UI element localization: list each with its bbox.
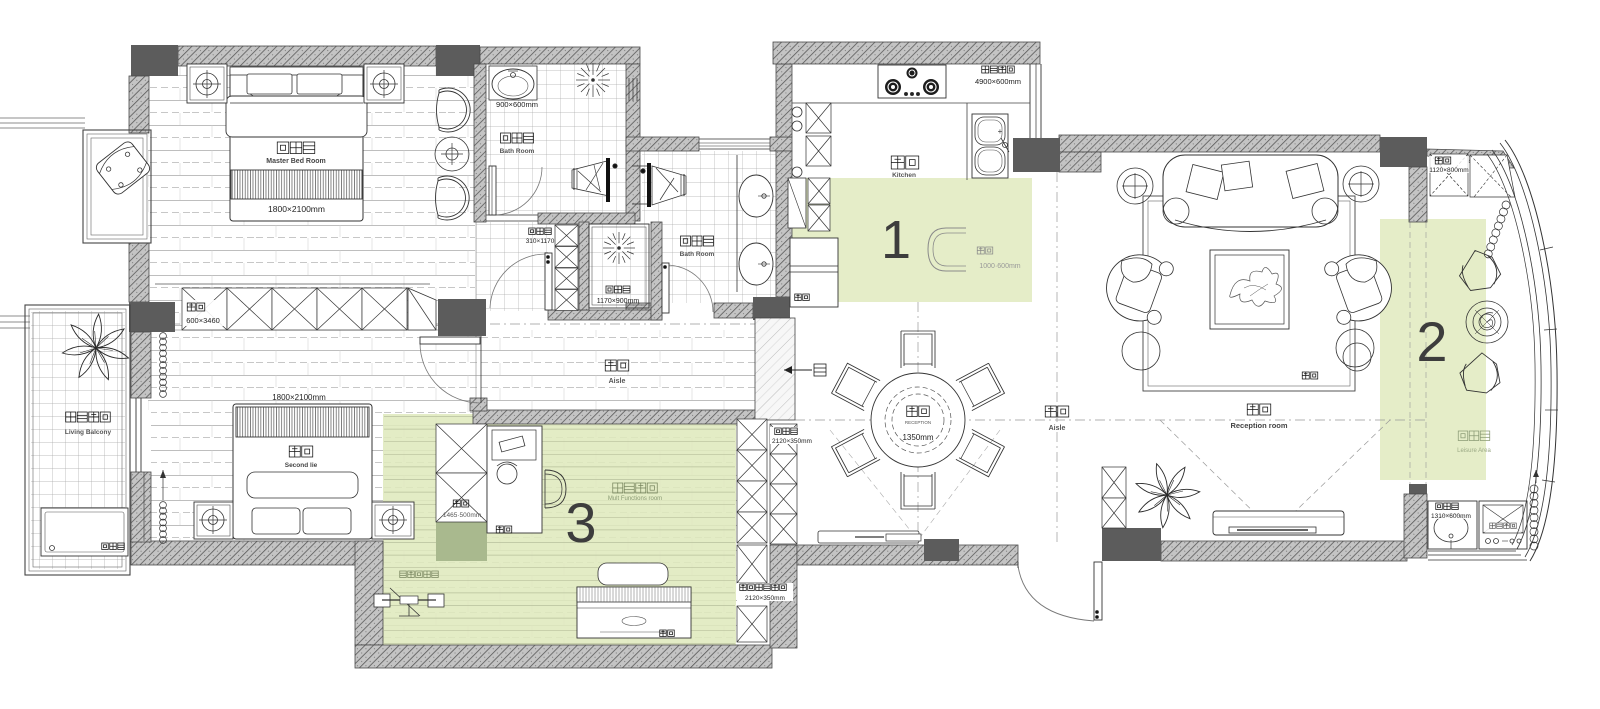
svg-text:Living Balcony: Living Balcony: [65, 429, 112, 436]
svg-text:Leisure Area: Leisure Area: [1457, 448, 1491, 454]
svg-text:1800×2100mm: 1800×2100mm: [268, 204, 325, 214]
svg-text:3: 3: [565, 491, 596, 554]
svg-text:Aisle: Aisle: [1049, 425, 1066, 432]
svg-text:1800×2100mm: 1800×2100mm: [272, 393, 326, 402]
svg-text:310×1170: 310×1170: [526, 238, 555, 245]
svg-text:Reception room: Reception room: [1230, 421, 1287, 430]
svg-text:1310×600mm: 1310×600mm: [1431, 513, 1471, 520]
svg-text:Bath Room: Bath Room: [500, 148, 535, 155]
svg-text:1120×800mm: 1120×800mm: [1429, 167, 1468, 174]
svg-text:2120×350mm: 2120×350mm: [745, 595, 785, 602]
svg-text:600×3460: 600×3460: [186, 316, 220, 325]
svg-text:Master Bed Room: Master Bed Room: [266, 158, 326, 165]
svg-text:RECEPTION: RECEPTION: [905, 420, 931, 425]
svg-text:1170×900mm: 1170×900mm: [597, 298, 640, 305]
svg-text:Kitchen: Kitchen: [892, 172, 916, 179]
svg-text:1465·500mm: 1465·500mm: [443, 512, 481, 519]
svg-text:900×600mm: 900×600mm: [496, 100, 538, 109]
svg-text:1350mm: 1350mm: [902, 433, 933, 442]
svg-text:Bath Room: Bath Room: [680, 251, 715, 258]
svg-text:2120×350mm: 2120×350mm: [772, 438, 812, 445]
svg-text:Aisle: Aisle: [609, 378, 626, 385]
svg-text:Mult Functions room: Mult Functions room: [608, 496, 662, 502]
svg-text:1000·600mm: 1000·600mm: [979, 263, 1020, 270]
svg-text:1: 1: [881, 210, 911, 270]
svg-text:2: 2: [1416, 310, 1447, 373]
svg-text:+: +: [998, 127, 1003, 136]
svg-text:Second lie: Second lie: [285, 462, 318, 469]
svg-text:4900×600mm: 4900×600mm: [975, 77, 1021, 86]
